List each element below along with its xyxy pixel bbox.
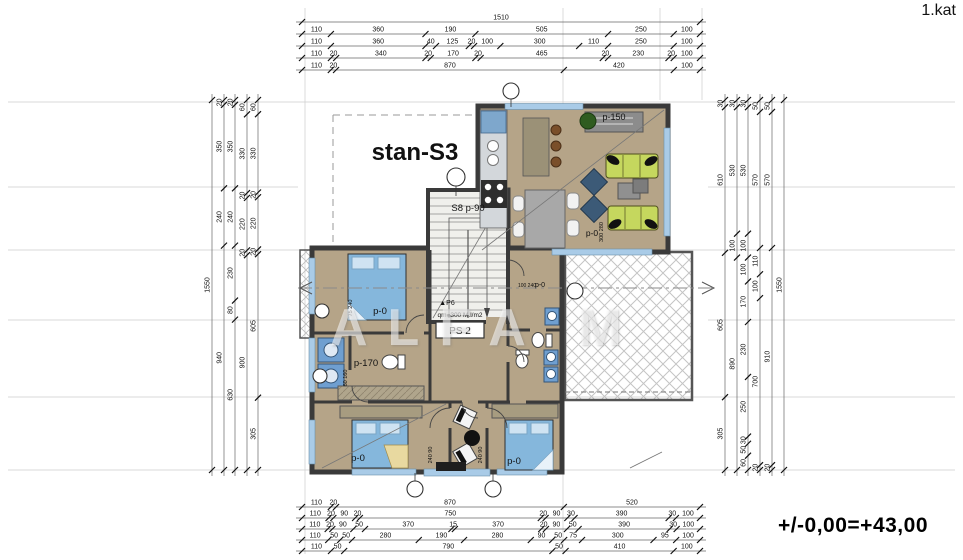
sink-bowl-1 (488, 141, 499, 152)
room-label: 240 90 (478, 447, 484, 464)
dimension-label: 20 (765, 464, 772, 472)
dimension-label: 230 (741, 344, 748, 356)
toilet (532, 333, 544, 348)
dimension-label: 20 (753, 464, 760, 472)
dimension-label: 350 (228, 141, 235, 153)
dimension-label: 20 (474, 51, 482, 58)
toilet (516, 354, 528, 368)
dimension-label: 570 (765, 174, 772, 186)
dimension-label: 605 (251, 320, 258, 332)
room-label: ▲P6 (439, 300, 455, 307)
grid-bubble (313, 369, 327, 383)
window-west-2 (309, 338, 315, 392)
grid-bubble (503, 83, 519, 99)
dimension-label: 110 (753, 255, 760, 266)
dimension-label: 750 (445, 511, 457, 518)
dimension-label: 125 (447, 39, 459, 46)
dimension-label: 15 (449, 522, 457, 529)
dimension-label: 940 (217, 352, 224, 364)
dimension-label: 100 (682, 522, 694, 529)
dimension-label: 1550 (205, 277, 212, 293)
dimension-label: 390 (618, 522, 630, 529)
round-table (464, 430, 480, 446)
dimension-label: 100 (681, 27, 693, 34)
dimension-label: 280 (492, 533, 504, 540)
dimension-label: 20 (468, 39, 476, 46)
dimension-label: 390 (616, 511, 628, 518)
grid-bubble (447, 168, 465, 186)
grid-bubble (567, 283, 583, 299)
dimension-label: 370 (402, 522, 414, 529)
dimension-label: 30 (741, 100, 748, 108)
dimension-label: 30 (669, 522, 677, 529)
dimension-label: 20 (424, 51, 432, 58)
dimension-label: 20 (540, 522, 548, 529)
dimension-label: 605 (718, 319, 725, 331)
headboard (492, 404, 558, 418)
room-label: 75 240 (348, 300, 354, 317)
dimension-label: 520 (626, 500, 638, 507)
room-label: 60 160 (343, 370, 349, 387)
room-label: p-150 (602, 112, 625, 122)
dimension-label: 110 (310, 533, 321, 540)
dimension-label: 50 (555, 544, 563, 551)
grid-bubble (407, 481, 423, 497)
dimension-label: 570 (753, 174, 760, 186)
dimension-label: 465 (536, 51, 548, 58)
dimension-label: 60 (741, 459, 748, 467)
room-label: p-0 (373, 306, 387, 317)
dimension-label: 300 (612, 533, 624, 540)
room-label: qm=300 M.l/m2 (438, 312, 483, 319)
dimension-label: 110 (588, 39, 599, 46)
dimension-label: 100 (681, 51, 693, 58)
pillow (509, 423, 527, 434)
dimension-label: 60 (240, 103, 247, 111)
dimension-label: 30 (668, 511, 676, 518)
dimension-label: 410 (614, 544, 626, 551)
floor-label: 1.kat (921, 2, 956, 20)
dimension-label: 100 (741, 264, 748, 276)
grid-bubble (485, 481, 501, 497)
dimension-label: 20 (327, 511, 335, 518)
dimension-label: 90 (339, 522, 347, 529)
floorplan-page: 1510110360190505250100110360401252010030… (0, 0, 963, 560)
dimension-label: 350 (217, 141, 224, 153)
dimension-label: 170 (447, 51, 459, 58)
dimension-label: 90 (553, 522, 561, 529)
pillow (531, 423, 549, 434)
dimension-label: 1550 (777, 277, 784, 293)
dimension-label: 910 (765, 351, 772, 363)
dimension-label: 420 (613, 63, 625, 70)
dimension-label: 110 (309, 522, 320, 529)
stove (481, 180, 507, 208)
terrace (565, 252, 692, 400)
dimension-label: 530 (730, 164, 737, 176)
dimension-label: 870 (444, 63, 456, 70)
dimension-label: 330 (251, 147, 258, 159)
pillow (378, 257, 400, 269)
dimension-label: 280 (380, 533, 392, 540)
window-terrace (552, 249, 652, 255)
dimension-label: 370 (492, 522, 504, 529)
plant (580, 113, 596, 129)
dimension-label: 20 (251, 191, 258, 199)
window-west-3 (309, 420, 315, 464)
dimension-label: 790 (442, 544, 454, 551)
dimension-label: 80 (228, 306, 235, 314)
dimension-label: 20 (539, 511, 547, 518)
bar-stool (551, 157, 561, 167)
dimension-label: 630 (228, 389, 235, 401)
dimension-label: 20 (326, 522, 334, 529)
dimension-label: 110 (311, 39, 322, 46)
dimension-label: 250 (635, 39, 647, 46)
unit-label: stan-S3 (372, 139, 459, 166)
dimension-label: 20 (602, 51, 610, 58)
dimension-label: 75 (569, 533, 577, 540)
bar-stool (551, 141, 561, 151)
dimension-label: 505 (536, 27, 548, 34)
dimension-label: 220 (251, 217, 258, 229)
room-label: 100 240 (518, 283, 536, 289)
dimension-label: 100 (682, 533, 694, 540)
dimension-label: 110 (311, 27, 322, 34)
dimension-label: 190 (445, 27, 457, 34)
dimension-label: 50 (569, 522, 577, 529)
dimension-label: 870 (444, 500, 456, 507)
kitchen-island (523, 118, 549, 176)
floorplan-drawing: 1510110360190505250100110360401252010030… (0, 0, 963, 560)
dimension-label: 110 (311, 51, 322, 58)
dimension-label: 100 (730, 240, 737, 252)
dimension-label: 50 (342, 533, 350, 540)
dimension-label: 20 (240, 191, 247, 199)
dimension-label: 110 (311, 500, 322, 507)
pillow (356, 423, 376, 434)
dimension-label: 100 (682, 511, 694, 518)
dining-chair (513, 196, 524, 211)
room-label: p-170 (354, 358, 378, 369)
dimension-label: 20 (228, 98, 235, 106)
dimension-label: 250 (741, 401, 748, 413)
window-south-1 (352, 469, 416, 475)
room-label: S8 p-90 (451, 203, 484, 214)
dimension-label: 50 (355, 522, 363, 529)
dimension-label: 330 (240, 148, 247, 160)
dimension-label: 100 (681, 63, 693, 70)
room-label: p-0 (507, 456, 521, 467)
dimension-label: 305 (718, 428, 725, 440)
dimension-label: 610 (718, 174, 725, 186)
dimension-label: 30 (567, 511, 575, 518)
sink-bowl-2 (488, 155, 499, 166)
dining-table (525, 190, 565, 248)
dimension-label: 30 (741, 436, 748, 444)
dining-chair (567, 220, 579, 236)
dimension-label: 305 (251, 428, 258, 440)
room-label: 300 280 (599, 222, 605, 242)
dimension-label: 110 (311, 544, 322, 551)
dimension-label: 30 (718, 100, 725, 108)
room-label: p-0 (586, 228, 599, 238)
toilet (382, 355, 398, 369)
dimension-label: 50 (753, 102, 760, 110)
room-label: PS 2 (449, 326, 471, 337)
dimension-label: 50 (330, 533, 338, 540)
grid-bubble (315, 304, 329, 318)
room-label: p-0 (535, 282, 545, 289)
pillow (380, 423, 400, 434)
pillow (352, 257, 374, 269)
dimension-label: 170 (741, 296, 748, 308)
dimension-label: 40 (427, 39, 435, 46)
room-label: p-0 (351, 453, 365, 464)
dimension-label: 100 (481, 39, 493, 46)
dining-chair (513, 222, 524, 237)
doormat (436, 462, 466, 471)
dimension-label: 60 (251, 103, 258, 111)
dimension-label: 20 (354, 511, 362, 518)
dimension-label: 100 (741, 240, 748, 252)
window-north (505, 104, 583, 110)
dimension-label: 20 (330, 63, 338, 70)
dimension-label: 700 (753, 376, 760, 388)
dimension-label: 100 (753, 280, 760, 292)
dimension-label: 340 (375, 51, 387, 58)
dimension-label: 50 (765, 102, 772, 110)
headboard (340, 406, 422, 418)
window-west-1 (309, 258, 315, 314)
level-label: +/-0,00=+43,00 (778, 514, 928, 538)
dimension-label: 900 (240, 357, 247, 369)
dining-chair (567, 193, 579, 209)
dimension-label: 20 (240, 249, 247, 257)
dimension-label: 250 (635, 27, 647, 34)
room-label: 240 90 (428, 447, 434, 464)
dimension-label: 50 (334, 544, 342, 551)
dimension-label: 230 (228, 267, 235, 279)
dimension-label: 190 (436, 533, 448, 540)
dimension-label: 20 (330, 51, 338, 58)
dimension-label: 240 (228, 211, 235, 223)
toilet-tank (398, 355, 405, 369)
dimension-label: 300 (534, 39, 546, 46)
dimension-label: 230 (632, 51, 644, 58)
side-table (633, 179, 648, 193)
stair-opening (486, 317, 506, 324)
window-east (664, 128, 670, 236)
dimension-label: 20 (330, 500, 338, 507)
dimension-label: 360 (372, 39, 384, 46)
dimension-label: 95 (661, 533, 669, 540)
dimension-label: 110 (310, 511, 321, 518)
dimension-label: 240 (217, 211, 224, 223)
dimension-label: 530 (741, 164, 748, 176)
dimension-label: 100 (681, 39, 693, 46)
dimension-label: 90 (553, 511, 561, 518)
dimension-label: 50 (741, 446, 748, 454)
dimension-label: 20 (217, 98, 224, 106)
dimension-label: 20 (667, 51, 675, 58)
dimension-label: 110 (311, 63, 322, 70)
dimension-label: 890 (730, 358, 737, 370)
dimension-label: 100 (681, 544, 693, 551)
dimension-label: 50 (554, 533, 562, 540)
dimension-label: 20 (251, 248, 258, 256)
dimension-label: 90 (340, 511, 348, 518)
dimension-label: 360 (372, 27, 384, 34)
dimension-label: 220 (240, 218, 247, 230)
dimension-label: 30 (730, 100, 737, 108)
dimension-label: 90 (538, 533, 546, 540)
dimension-label: 1510 (493, 15, 509, 22)
fridge (481, 111, 506, 133)
bar-stool (551, 125, 561, 135)
